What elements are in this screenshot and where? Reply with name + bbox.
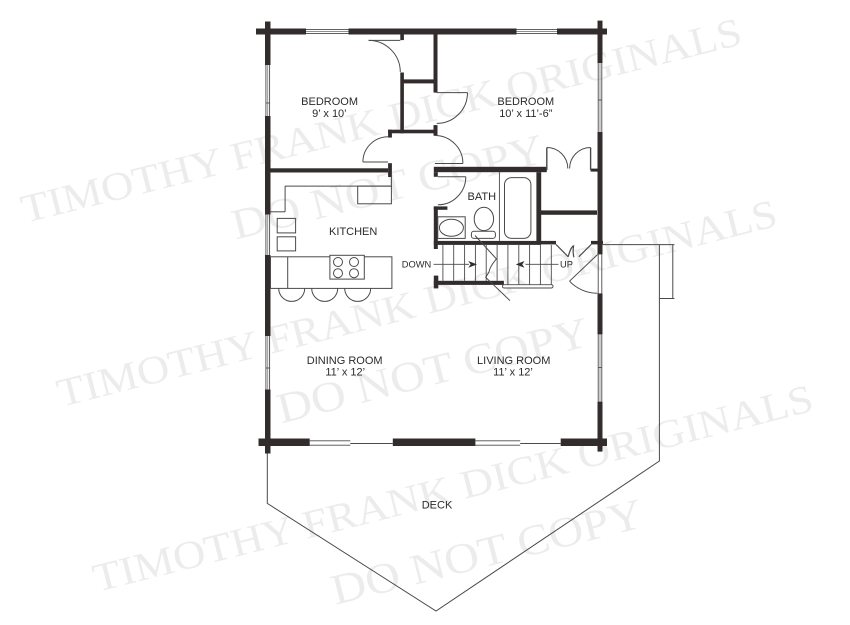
svg-text:9’ x 10’: 9’ x 10’ [312,108,346,120]
svg-text:BEDROOM: BEDROOM [301,96,358,108]
svg-text:UP: UP [560,260,573,270]
svg-text:10’ x 11’-6”: 10’ x 11’-6” [499,108,553,120]
svg-text:BEDROOM: BEDROOM [497,96,554,108]
svg-text:KITCHEN: KITCHEN [329,226,377,238]
svg-text:DINING ROOM: DINING ROOM [307,355,383,367]
svg-text:LIVING ROOM: LIVING ROOM [477,355,550,367]
svg-text:DECK: DECK [422,500,453,512]
svg-text:11’ x 12’: 11’ x 12’ [493,366,533,378]
svg-text:DOWN: DOWN [402,260,431,270]
svg-text:11’ x 12’: 11’ x 12’ [325,366,365,378]
svg-text:BATH: BATH [468,191,497,203]
